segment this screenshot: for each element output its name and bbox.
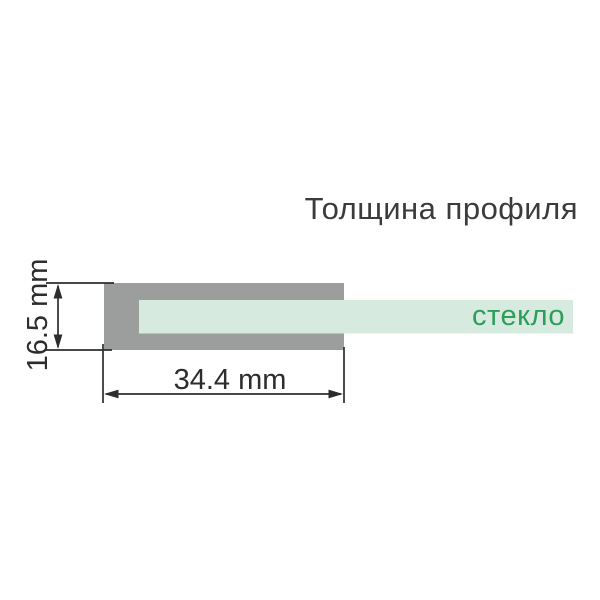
height-dimension: 16.5 mm bbox=[22, 259, 114, 372]
width-dimension: 34.4 mm bbox=[103, 344, 344, 403]
page-title: Толщина профиля bbox=[305, 191, 578, 226]
width-dimension-label: 34.4 mm bbox=[174, 364, 287, 396]
arrowhead-left-icon bbox=[104, 390, 119, 399]
height-dimension-label: 16.5 mm bbox=[22, 259, 54, 372]
arrowhead-up-icon bbox=[54, 284, 63, 299]
profile-thickness-figure: Толщина профиля стекло 16.5 mm 34.4 mm bbox=[0, 0, 600, 600]
profile-thickness-diagram: Толщина профиля стекло 16.5 mm 34.4 mm bbox=[0, 0, 600, 600]
arrowhead-down-icon bbox=[54, 335, 63, 350]
glass-label: стекло bbox=[472, 300, 565, 332]
arrowhead-right-icon bbox=[329, 390, 344, 399]
